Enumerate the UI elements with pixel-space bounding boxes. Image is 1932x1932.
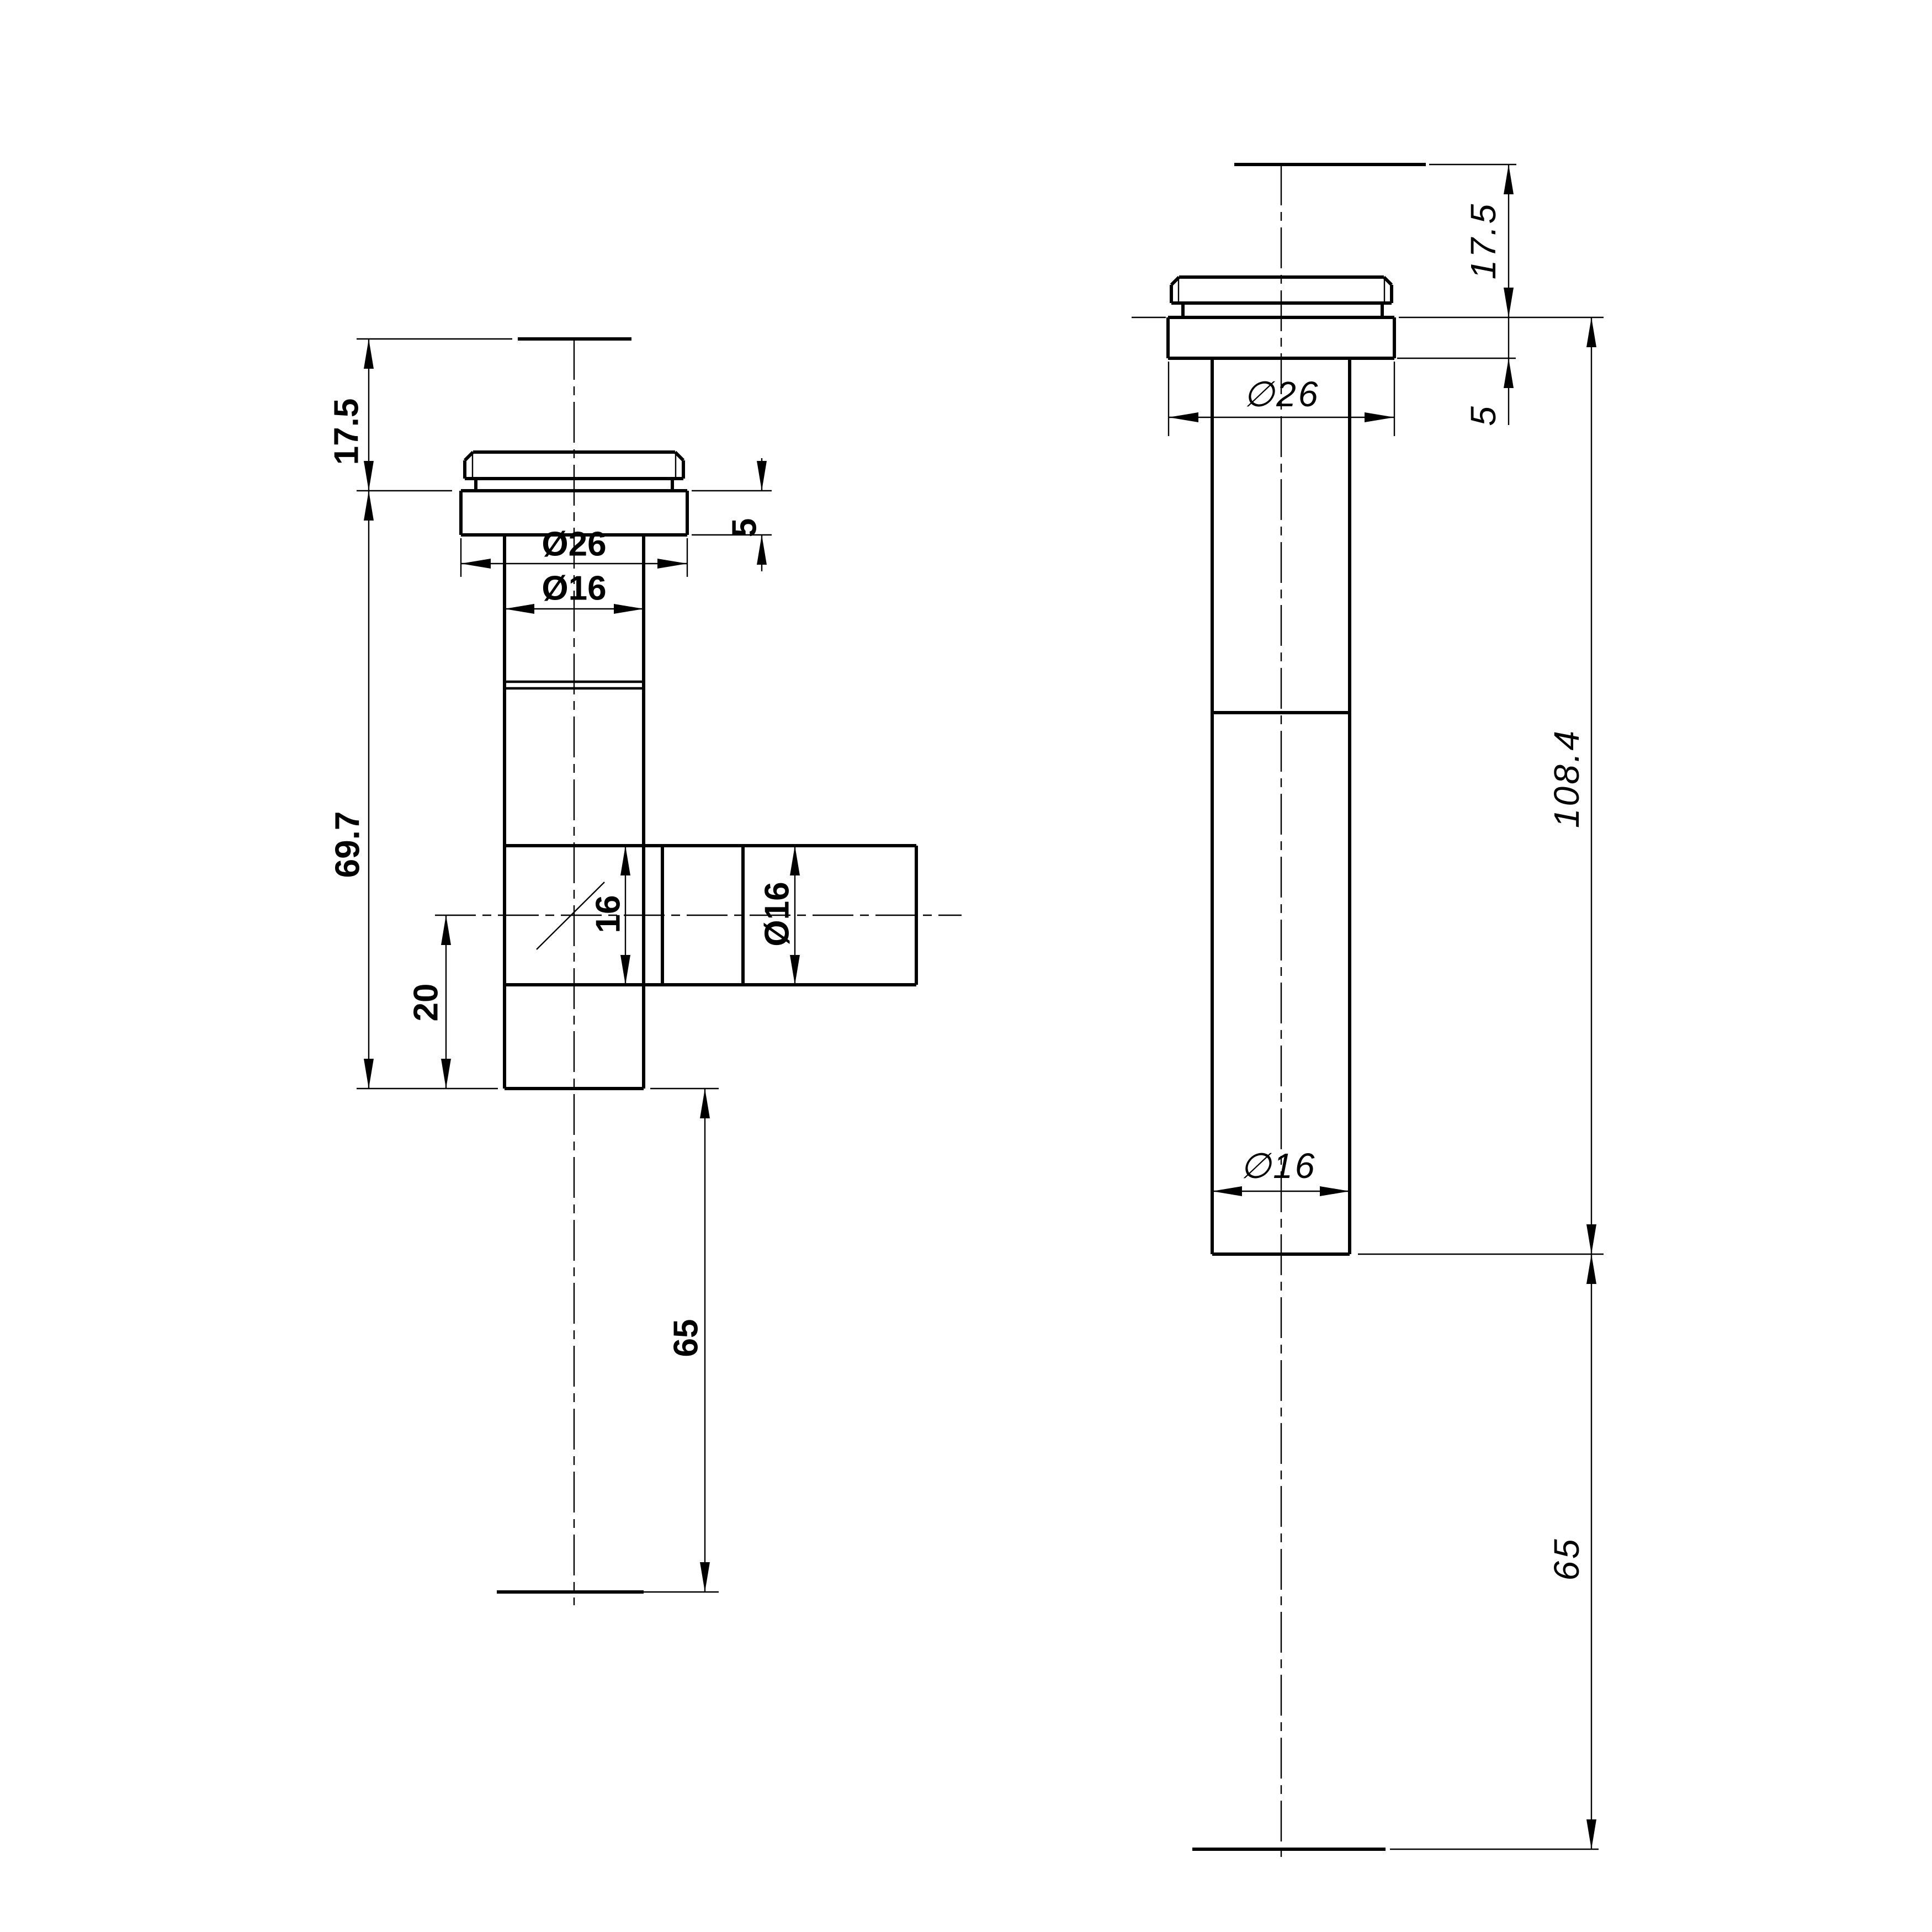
right-dim-cap-height-label: 17.5 [1463, 202, 1503, 280]
left-dim-flange-height-label: 5 [726, 518, 764, 537]
right-dim-flange-height-label: 5 [1463, 404, 1503, 426]
left-dim-branch-bore-label: 16 [590, 895, 628, 933]
left-view-tee-fitting: 17.5 69.7 5 Ø26 Ø16 16 Ø16 20 65 [328, 339, 962, 1605]
left-dim-branch-diameter-label: Ø16 [758, 882, 797, 946]
right-view-straight-fitting: 17.5 5 ∅26 108.4 ∅16 65 [1132, 164, 1604, 1860]
right-dim-pipe-diameter-label: ∅16 [1240, 1146, 1317, 1186]
left-view-outline [461, 339, 916, 1592]
technical-drawing-canvas: 17.5 69.7 5 Ø26 Ø16 16 Ø16 20 65 [0, 0, 1932, 1932]
left-dim-body-length-label: 69.7 [329, 811, 367, 878]
left-dim-cap-height-label: 17.5 [328, 399, 366, 465]
left-dim-tail-length-label: 65 [667, 1319, 705, 1357]
left-dim-pipe-diameter-label: Ø16 [542, 570, 606, 608]
right-dim-body-length-label: 108.4 [1547, 729, 1586, 828]
right-dim-tail-length-label: 65 [1547, 1537, 1586, 1580]
left-dim-branch-offset-label: 20 [407, 984, 445, 1022]
left-dim-flange-diameter-label: Ø26 [542, 526, 606, 564]
right-dim-flange-diameter-label: ∅26 [1244, 374, 1320, 414]
drawing-sheet: 17.5 69.7 5 Ø26 Ø16 16 Ø16 20 65 [0, 0, 1932, 1932]
